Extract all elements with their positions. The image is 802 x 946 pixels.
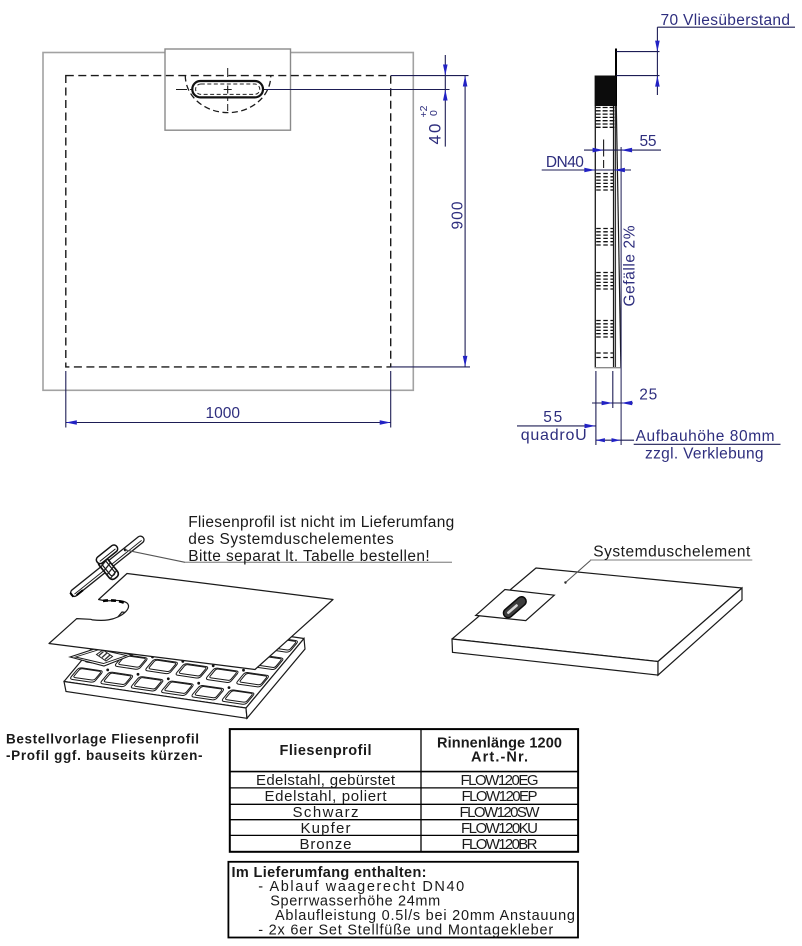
svg-text:Systemduschelement: Systemduschelement [593, 544, 751, 561]
svg-text:Fliesenprofil: Fliesenprofil [280, 743, 372, 759]
svg-text:1000: 1000 [206, 405, 241, 422]
svg-text:Gefälle 2%: Gefälle 2% [622, 225, 639, 306]
svg-text:FLOW120SW: FLOW120SW [460, 804, 541, 821]
svg-text:Edelstahl, gebürstet: Edelstahl, gebürstet [256, 772, 396, 789]
svg-text:FLOW120EG: FLOW120EG [461, 772, 539, 789]
svg-text:25: 25 [639, 387, 657, 404]
svg-text:des Systemduschelementes: des Systemduschelementes [188, 531, 394, 548]
svg-text:900: 900 [450, 201, 467, 229]
svg-text:Art.-Nr.: Art.-Nr. [471, 750, 528, 766]
svg-text:-Profil ggf. bauseits kürzen-: -Profil ggf. bauseits kürzen- [6, 748, 203, 763]
svg-text:FLOW120KU: FLOW120KU [461, 820, 538, 837]
svg-text:Edelstahl, poliert: Edelstahl, poliert [265, 788, 388, 805]
svg-text:Bitte separat lt. Tabelle best: Bitte separat lt. Tabelle bestellen! [188, 548, 430, 565]
svg-text:DN40: DN40 [546, 154, 584, 171]
svg-text:zzgl. Verklebung: zzgl. Verklebung [645, 446, 764, 463]
svg-text:Fliesenprofil ist nicht im Lie: Fliesenprofil ist nicht im Lieferumfang [188, 514, 454, 531]
svg-text:55: 55 [543, 409, 562, 426]
svg-text:55: 55 [640, 133, 657, 150]
svg-text:Bestellvorlage Fliesenprofil: Bestellvorlage Fliesenprofil [6, 732, 199, 747]
svg-text:quadroU: quadroU [521, 427, 587, 444]
svg-text:FLOW120EP: FLOW120EP [462, 788, 538, 805]
svg-text:Aufbauhöhe 80mm: Aufbauhöhe 80mm [636, 428, 775, 445]
svg-text:Kupfer: Kupfer [301, 820, 351, 837]
svg-text:0: 0 [428, 110, 440, 116]
svg-text:- 2x 6er Set Stellfüße und Mon: - 2x 6er Set Stellfüße und Montagekleber [258, 922, 553, 938]
svg-text:70 Vliesüberstand: 70 Vliesüberstand [661, 12, 791, 29]
svg-text:Schwarz: Schwarz [293, 804, 359, 821]
svg-text:Bronze: Bronze [300, 836, 352, 853]
svg-text:FLOW120BR: FLOW120BR [462, 836, 538, 853]
